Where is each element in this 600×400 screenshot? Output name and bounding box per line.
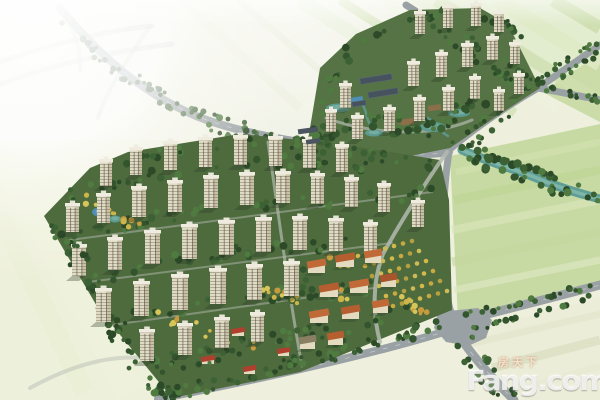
- tower-roof-cap: [439, 50, 443, 53]
- tree: [425, 328, 432, 335]
- tower-roof-cap: [134, 145, 139, 148]
- tower-roof: [328, 218, 344, 222]
- tree: [573, 288, 578, 293]
- tower-floors: [199, 140, 212, 167]
- tower-floors: [384, 110, 395, 131]
- tower-floors: [215, 320, 229, 348]
- orchard-tree: [401, 241, 406, 246]
- tower-floors: [436, 55, 447, 77]
- tree: [483, 165, 490, 172]
- tower-roof-cap: [219, 315, 225, 318]
- tower-floors: [145, 233, 160, 264]
- tree: [474, 147, 482, 155]
- tree: [287, 163, 294, 170]
- tower-floors: [247, 267, 262, 300]
- tree: [591, 192, 597, 198]
- tree: [489, 127, 495, 133]
- tree: [376, 114, 381, 119]
- tower-roof-cap: [340, 142, 345, 145]
- tree: [237, 351, 242, 356]
- tree: [502, 317, 509, 324]
- tree: [417, 184, 424, 191]
- tower-floors: [210, 271, 226, 304]
- tree: [427, 158, 432, 163]
- tower-roof: [493, 89, 505, 93]
- tower-roof-cap: [329, 107, 333, 110]
- tower-roof-cap: [473, 74, 477, 77]
- tower-roof-cap: [150, 228, 156, 231]
- tower-roof-cap: [446, 3, 450, 6]
- tower-roof: [486, 36, 499, 40]
- tree: [317, 247, 323, 253]
- tower-roof-cap: [203, 135, 208, 138]
- autumn-tree: [111, 211, 115, 215]
- tree: [86, 286, 91, 291]
- tree: [303, 277, 310, 284]
- tower-roof: [325, 109, 337, 113]
- orchard-tree: [410, 239, 415, 244]
- tree: [427, 185, 435, 193]
- tower-roof: [218, 220, 235, 224]
- tree: [284, 342, 290, 348]
- tree: [549, 85, 554, 90]
- tower-roof: [214, 317, 230, 321]
- tree: [586, 293, 592, 299]
- tree: [495, 69, 501, 75]
- tree: [157, 382, 164, 389]
- tree: [540, 75, 544, 79]
- tree: [576, 182, 581, 187]
- tower-roof-cap: [289, 259, 295, 262]
- tower-roof: [203, 175, 219, 179]
- tower-roof-cap: [261, 215, 267, 218]
- tree: [561, 74, 566, 79]
- tree: [147, 375, 152, 380]
- tower-floors: [514, 76, 524, 94]
- orchard-tree: [431, 269, 436, 274]
- tree: [507, 304, 512, 309]
- orchard-tree: [384, 294, 389, 299]
- tower-roof: [171, 274, 189, 278]
- tree: [88, 181, 95, 188]
- tower-roof: [363, 222, 378, 226]
- tower-roof: [411, 200, 425, 204]
- tower-floors: [178, 326, 192, 355]
- tree: [583, 58, 588, 63]
- tree: [266, 372, 271, 377]
- tree: [394, 160, 398, 164]
- tree: [353, 164, 360, 171]
- tree: [206, 348, 212, 354]
- tree: [372, 118, 378, 124]
- tree: [320, 123, 327, 130]
- tree: [346, 330, 352, 336]
- tree: [114, 324, 119, 329]
- tower-roof-cap: [416, 198, 421, 201]
- tree: [97, 280, 101, 284]
- tree: [130, 269, 137, 276]
- tower-floors: [140, 332, 154, 361]
- tree: [459, 144, 466, 151]
- tower-roof: [167, 180, 183, 184]
- tower-roof: [65, 203, 80, 207]
- tree: [211, 377, 217, 383]
- tree: [361, 149, 368, 156]
- tower-roof: [181, 224, 198, 228]
- tree: [280, 242, 288, 250]
- tree: [444, 35, 448, 39]
- tree: [344, 118, 350, 124]
- tree: [340, 282, 345, 287]
- orchard-tree: [429, 281, 434, 286]
- tree: [199, 382, 203, 386]
- tree: [569, 70, 573, 74]
- tree: [344, 237, 348, 241]
- tree: [93, 273, 98, 278]
- tree: [426, 165, 433, 172]
- tree: [172, 218, 176, 222]
- tree: [431, 126, 436, 131]
- orchard-tree: [411, 286, 416, 291]
- tree: [382, 153, 387, 158]
- tower-roof-cap: [182, 321, 188, 324]
- autumn-tree: [274, 288, 280, 294]
- scene-svg: [0, 0, 600, 400]
- tree: [313, 293, 319, 299]
- tree: [116, 329, 121, 334]
- tree: [380, 159, 384, 163]
- tree: [476, 373, 481, 378]
- autumn-tree: [272, 295, 277, 300]
- tree: [377, 32, 382, 37]
- tree: [502, 57, 506, 61]
- tree: [278, 365, 283, 370]
- orchard-tree: [397, 266, 402, 271]
- tree: [508, 77, 513, 82]
- tree: [367, 190, 373, 196]
- tree: [407, 17, 413, 23]
- tower-floors: [182, 227, 197, 259]
- tree: [496, 393, 500, 397]
- tower-roof: [233, 135, 248, 139]
- tree: [316, 350, 323, 357]
- orchard-tree: [424, 259, 429, 264]
- tree: [290, 146, 294, 150]
- tower-roof-cap: [417, 95, 421, 98]
- tree: [499, 118, 504, 123]
- tree: [194, 386, 201, 393]
- tower-roof: [163, 141, 178, 145]
- tree: [150, 153, 156, 159]
- tree: [552, 66, 558, 72]
- tree: [513, 392, 517, 396]
- tree: [127, 366, 132, 371]
- tree: [532, 298, 538, 304]
- tower-floors: [293, 219, 307, 250]
- tower-roof-cap: [273, 134, 278, 137]
- tree: [564, 188, 572, 196]
- tree: [123, 321, 127, 325]
- autumn-tree: [340, 298, 344, 302]
- tree: [295, 154, 301, 160]
- tower-roof-cap: [411, 59, 415, 62]
- tree: [478, 378, 485, 385]
- tower-floors: [130, 150, 142, 175]
- tower-floors: [345, 180, 358, 207]
- tree: [468, 364, 473, 369]
- tree: [287, 336, 292, 341]
- tower-roof: [414, 11, 426, 15]
- tower-roof: [131, 186, 147, 190]
- tree: [198, 348, 204, 354]
- tree: [151, 389, 158, 396]
- tower-roof-cap: [139, 279, 145, 282]
- tree: [264, 199, 269, 204]
- tree: [585, 94, 590, 99]
- tower-roof: [107, 237, 123, 241]
- tree: [473, 159, 478, 164]
- tree: [229, 348, 235, 354]
- tower-floors: [97, 196, 110, 223]
- tree: [287, 330, 292, 335]
- tree: [484, 154, 493, 163]
- tree: [197, 362, 202, 367]
- tree: [560, 303, 567, 310]
- tower-roof-cap: [446, 85, 450, 88]
- tree: [331, 351, 337, 357]
- tower-floors: [251, 315, 264, 342]
- tree: [453, 43, 459, 49]
- tree: [482, 147, 488, 153]
- tree: [594, 41, 600, 47]
- tower-floors: [204, 178, 218, 208]
- tower-floors: [471, 6, 481, 26]
- tower-roof-cap: [349, 175, 354, 178]
- tree: [468, 309, 472, 313]
- tree: [269, 331, 276, 338]
- tree: [470, 35, 475, 40]
- tree: [368, 155, 375, 162]
- tree: [499, 166, 507, 174]
- tree: [174, 384, 181, 391]
- tower-roof: [344, 177, 359, 181]
- tree: [299, 290, 306, 297]
- tower-floors: [172, 277, 188, 310]
- tower-roof: [139, 329, 155, 333]
- tree: [72, 243, 77, 248]
- tree: [165, 388, 173, 396]
- tree: [72, 234, 77, 239]
- tree: [299, 355, 303, 359]
- tree: [123, 160, 131, 168]
- orchard-tree: [417, 249, 422, 254]
- tower-roof-cap: [238, 133, 243, 136]
- tower-floors: [256, 220, 271, 252]
- tree: [251, 142, 257, 148]
- tower-roof: [96, 193, 111, 197]
- tree: [440, 117, 445, 122]
- autumn-tree: [412, 303, 418, 309]
- orchard-tree: [418, 296, 423, 301]
- tree: [537, 308, 542, 313]
- tower-floors: [234, 138, 247, 165]
- tower-floors: [408, 64, 419, 86]
- tree: [465, 129, 471, 135]
- tree: [160, 370, 165, 375]
- tower-roof: [335, 144, 349, 148]
- tower-roof-cap: [418, 9, 422, 12]
- pond-highlight: [111, 216, 118, 220]
- tower-floors: [108, 240, 122, 270]
- tree: [507, 115, 511, 119]
- tree: [154, 209, 160, 215]
- tree: [473, 59, 479, 65]
- orchard-tree: [391, 304, 396, 309]
- tower-floors: [66, 206, 79, 232]
- tree: [280, 328, 287, 335]
- tree: [235, 380, 241, 386]
- tower-roof: [351, 115, 364, 119]
- tree: [125, 338, 131, 344]
- orchard-tree: [383, 246, 388, 251]
- tower-roof-cap: [497, 9, 501, 12]
- autumn-tree: [121, 218, 127, 224]
- orchard-tree: [406, 264, 411, 269]
- tree: [484, 305, 490, 311]
- autumn-tree: [208, 329, 212, 333]
- tower-roof: [99, 159, 113, 163]
- tower-roof-cap: [513, 40, 517, 43]
- tower-roof: [250, 312, 265, 316]
- tree: [300, 284, 307, 291]
- orchard-tree: [436, 291, 441, 296]
- tower-floors: [470, 79, 480, 99]
- tree: [240, 339, 244, 343]
- tower-roof: [513, 73, 525, 77]
- tree: [527, 84, 532, 89]
- tree: [405, 330, 409, 334]
- orchard-tree: [399, 254, 404, 259]
- tower-roof: [377, 183, 391, 187]
- autumn-tree: [155, 309, 161, 315]
- tree: [319, 99, 325, 105]
- tree: [558, 292, 562, 296]
- tree: [342, 44, 350, 52]
- tower-roof-cap: [177, 272, 183, 275]
- orchard-tree: [404, 276, 409, 281]
- tower-floors: [494, 14, 504, 32]
- autumn-tree: [175, 316, 179, 320]
- haze-top-strip: [0, 0, 600, 26]
- tree: [68, 262, 73, 267]
- tree: [538, 182, 545, 189]
- autumn-tree: [418, 307, 424, 313]
- tree: [294, 142, 301, 149]
- orchard-tree: [393, 291, 398, 296]
- tree: [582, 46, 586, 50]
- autumn-tree: [137, 221, 142, 226]
- orchard-tree: [390, 256, 395, 261]
- tree: [245, 251, 251, 257]
- tower-roof-cap: [490, 34, 494, 37]
- tree: [310, 239, 317, 246]
- tree: [498, 319, 502, 323]
- tower-roof-cap: [101, 191, 106, 194]
- tree: [53, 225, 59, 231]
- tree: [512, 173, 519, 180]
- tower-roof-cap: [187, 222, 193, 225]
- tree: [433, 12, 440, 19]
- tree: [578, 49, 582, 53]
- tree: [53, 235, 58, 240]
- orchard-tree: [427, 294, 432, 299]
- tree: [513, 159, 522, 168]
- tower-floors: [269, 139, 282, 166]
- tower-floors: [303, 142, 316, 168]
- tree: [548, 171, 554, 177]
- tree: [490, 308, 497, 315]
- tower-floors: [219, 223, 234, 255]
- tree: [519, 34, 524, 39]
- tower-floors: [487, 39, 498, 60]
- tower-roof-cap: [280, 169, 286, 172]
- tree: [205, 297, 211, 303]
- tree: [125, 180, 130, 185]
- tree: [371, 340, 377, 346]
- tree: [324, 138, 330, 144]
- tree: [430, 24, 436, 30]
- tree: [110, 277, 117, 284]
- tower-floors: [100, 162, 112, 186]
- tree: [299, 360, 306, 367]
- tree: [308, 286, 315, 293]
- tree: [538, 168, 545, 175]
- orchard-tree: [370, 274, 375, 279]
- autumn-tree: [399, 294, 405, 300]
- tower-floors: [364, 225, 377, 253]
- tree: [204, 389, 210, 395]
- autumn-tree: [413, 309, 418, 314]
- tower-roof: [133, 281, 150, 285]
- tree: [429, 120, 436, 127]
- tree: [157, 174, 165, 182]
- tree: [414, 193, 419, 198]
- tower-floors: [134, 284, 149, 316]
- tree: [471, 325, 476, 330]
- tree: [587, 42, 592, 47]
- tower-roof-cap: [76, 242, 82, 245]
- tree: [433, 318, 440, 325]
- tree: [236, 247, 242, 253]
- tree: [481, 100, 490, 109]
- tree: [253, 156, 260, 163]
- tower-floors: [329, 221, 343, 251]
- tree: [117, 180, 122, 185]
- tower-roof: [461, 43, 474, 47]
- tree: [491, 367, 497, 373]
- tower-roof-cap: [252, 262, 258, 265]
- orchard-tree: [381, 259, 386, 264]
- tree: [147, 214, 155, 222]
- tower-roof: [275, 171, 291, 175]
- tree: [553, 62, 557, 66]
- tree: [488, 380, 495, 387]
- tower-roof: [442, 5, 454, 9]
- tree: [302, 327, 308, 333]
- tower-floors: [414, 100, 425, 121]
- tree: [320, 149, 327, 156]
- tower-floors: [443, 8, 453, 28]
